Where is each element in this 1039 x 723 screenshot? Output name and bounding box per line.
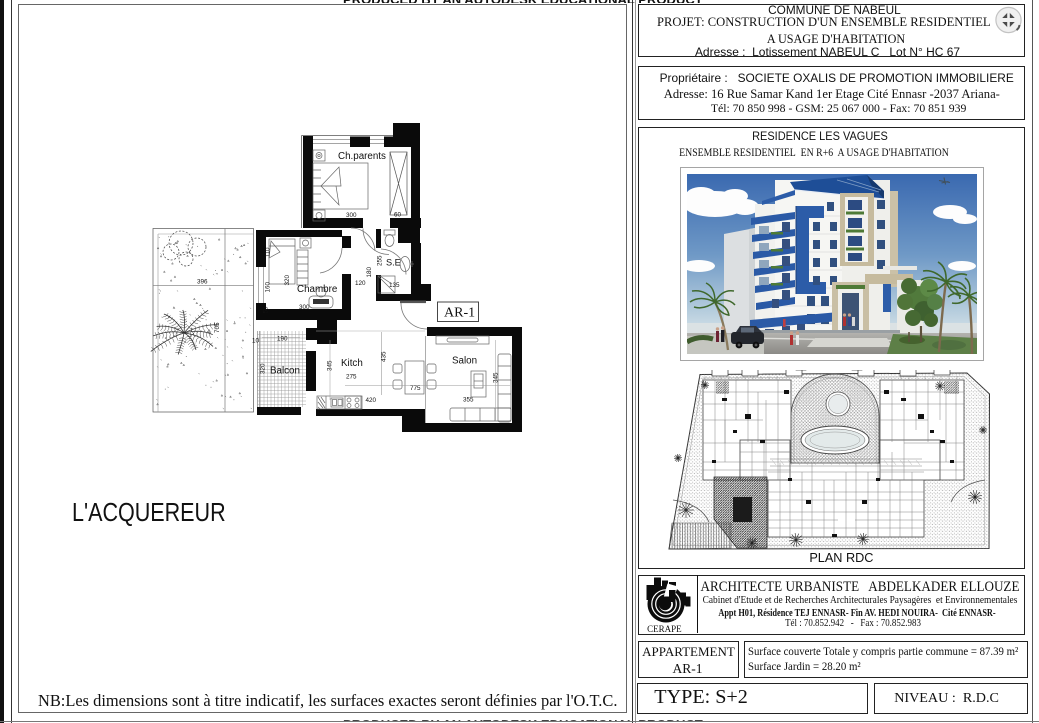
svg-text:Kitch: Kitch bbox=[341, 358, 363, 369]
svg-text:Salon: Salon bbox=[452, 356, 477, 367]
svg-text:190: 190 bbox=[277, 336, 288, 343]
svg-text:345: 345 bbox=[493, 372, 500, 383]
svg-text:275: 275 bbox=[346, 374, 357, 381]
svg-text:S.E: S.E bbox=[386, 258, 401, 268]
svg-text:775: 775 bbox=[410, 385, 421, 392]
svg-text:135: 135 bbox=[389, 282, 400, 289]
svg-text:AR-1: AR-1 bbox=[444, 306, 475, 321]
svg-text:435: 435 bbox=[381, 351, 388, 362]
svg-text:10: 10 bbox=[252, 338, 260, 345]
svg-text:300: 300 bbox=[299, 304, 310, 311]
svg-text:120: 120 bbox=[355, 280, 366, 287]
svg-text:300: 300 bbox=[346, 212, 357, 219]
svg-text:420: 420 bbox=[366, 397, 377, 404]
svg-text:Ch.parents: Ch.parents bbox=[338, 151, 386, 162]
svg-text:110: 110 bbox=[265, 247, 272, 258]
svg-text:60: 60 bbox=[394, 212, 402, 219]
svg-text:Balcon: Balcon bbox=[270, 366, 300, 377]
svg-text:160: 160 bbox=[265, 281, 272, 292]
svg-text:180: 180 bbox=[366, 266, 373, 277]
svg-text:Chambre: Chambre bbox=[297, 284, 338, 295]
svg-text:396: 396 bbox=[197, 279, 208, 286]
svg-text:355: 355 bbox=[463, 397, 474, 404]
svg-text:50: 50 bbox=[263, 306, 270, 314]
svg-text:320: 320 bbox=[284, 274, 291, 285]
svg-text:320: 320 bbox=[260, 363, 267, 374]
svg-text:705: 705 bbox=[214, 322, 221, 333]
svg-text:255: 255 bbox=[377, 255, 384, 266]
